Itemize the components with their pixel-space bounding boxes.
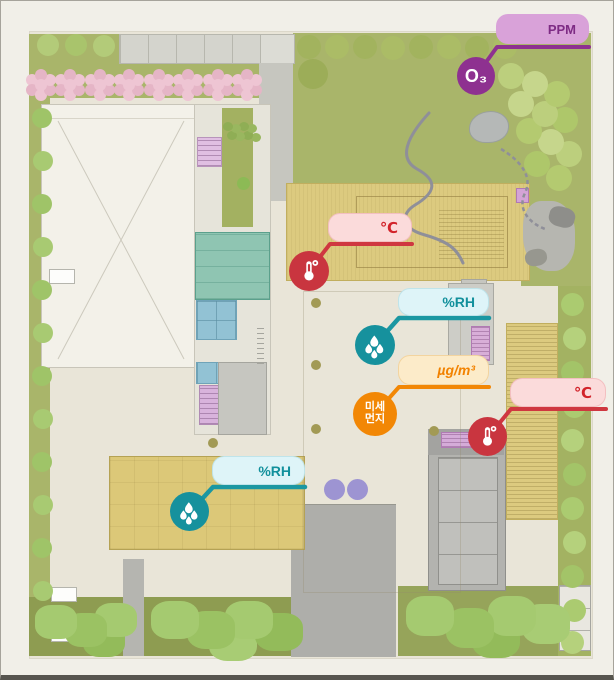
- ramp-ticks: [257, 328, 264, 364]
- temp-east-unit-label: ℃: [574, 384, 592, 402]
- temp-east-unit-pill[interactable]: ℃: [510, 378, 606, 407]
- courtyard-trees: [311, 298, 321, 308]
- purple-trees: [324, 479, 345, 500]
- service-rooms: [218, 362, 267, 435]
- gym-building: [41, 104, 196, 368]
- plan-label-box: [49, 269, 75, 284]
- ozone-badge[interactable]: O₃: [457, 57, 495, 95]
- stairwell-south: [199, 385, 220, 425]
- tree-row: [561, 293, 584, 316]
- blossom-tree: [153, 79, 165, 91]
- humidity-courtyard-unit-label: %RH: [442, 294, 475, 310]
- blossom-tree: [212, 79, 224, 91]
- pond: [469, 111, 509, 143]
- humidity-classroom-unit-label: %RH: [258, 463, 291, 479]
- bush-cluster: [35, 605, 77, 639]
- temp-roof-unit-label: ℃: [380, 219, 398, 237]
- blossom-tree: [123, 79, 135, 91]
- humidity-courtyard-badge[interactable]: [355, 325, 395, 365]
- tree-row: [32, 108, 52, 128]
- thermometer-icon: [475, 424, 500, 449]
- parking-lot: [119, 34, 261, 64]
- fine-dust-badge[interactable]: 미세 먼지: [353, 392, 397, 436]
- utility-rooms-a: [196, 300, 237, 340]
- humidity-classroom-badge[interactable]: [170, 492, 209, 531]
- humidity-courtyard-unit-pill[interactable]: %RH: [398, 288, 489, 316]
- blossom-tree: [94, 79, 106, 91]
- gym-roof-line: [41, 118, 194, 119]
- bush-cluster: [151, 601, 199, 639]
- tree-cluster: [498, 63, 524, 89]
- tree-row: [37, 34, 59, 56]
- fine-dust-unit-pill[interactable]: µg/m³: [398, 355, 489, 385]
- blossom-tree: [241, 79, 253, 91]
- plan-label-box: [51, 587, 77, 602]
- east-louvered-building: [506, 323, 558, 520]
- humidity-icon: [361, 331, 389, 359]
- humidity-icon: [176, 498, 203, 525]
- tree: [298, 59, 328, 89]
- humidity-classroom-unit-pill[interactable]: %RH: [212, 456, 305, 485]
- site-plan: PPM O₃ ℃ %RH µg/m³ 미세 먼지: [0, 0, 614, 680]
- thermometer-icon: [296, 258, 322, 284]
- restroom-block: [195, 232, 270, 300]
- roof-access-box: [516, 188, 529, 203]
- south-path: [123, 559, 144, 656]
- ozone-unit-pill[interactable]: PPM: [496, 14, 589, 44]
- bush-cluster: [406, 596, 454, 636]
- blossom-tree: [64, 79, 76, 91]
- ozone-symbol: O₃: [465, 66, 487, 87]
- temp-roof-badge[interactable]: [289, 251, 329, 291]
- blossom-tree: [35, 79, 47, 91]
- fine-dust-unit-label: µg/m³: [437, 362, 475, 378]
- stairwell-north: [197, 137, 222, 167]
- blossom-tree: [182, 79, 194, 91]
- fine-dust-label-line2: 먼지: [365, 414, 385, 426]
- northeast-garden: [293, 33, 529, 183]
- temp-east-badge[interactable]: [468, 417, 507, 456]
- tree: [237, 177, 250, 190]
- hedge: [223, 122, 233, 131]
- parking-lot-end: [260, 34, 295, 64]
- utility-hut: [559, 585, 591, 651]
- tree-row: [297, 35, 321, 59]
- temp-roof-unit-pill[interactable]: ℃: [328, 213, 412, 242]
- ozone-unit-label: PPM: [548, 22, 576, 37]
- rooftop-louvers: [439, 209, 504, 259]
